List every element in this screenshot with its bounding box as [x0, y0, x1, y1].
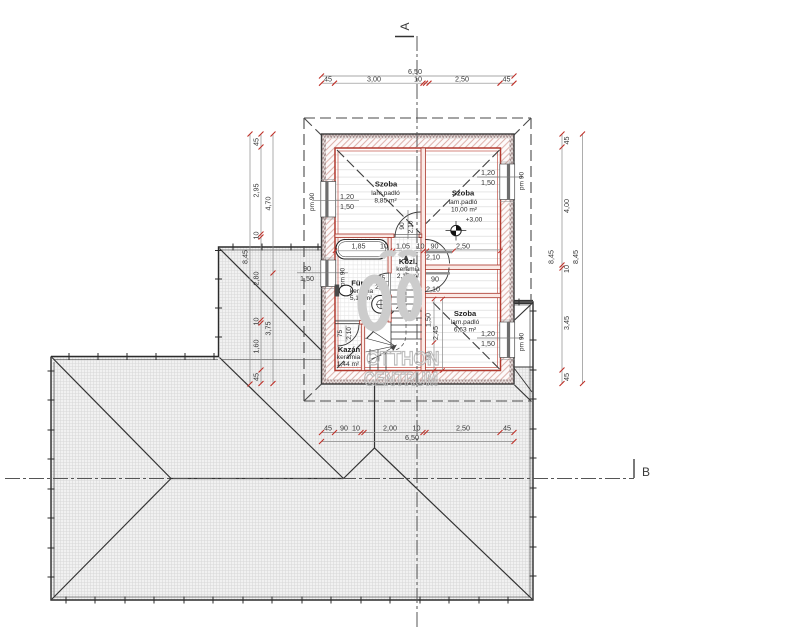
svg-text:1,50: 1,50 — [481, 178, 495, 187]
svg-text:10,00 m²: 10,00 m² — [451, 207, 478, 214]
svg-text:pm 90: pm 90 — [309, 193, 316, 212]
svg-text:4,00: 4,00 — [562, 199, 571, 213]
svg-text:Szoba: Szoba — [454, 309, 477, 318]
svg-text:90: 90 — [303, 264, 311, 273]
svg-text:3,75: 3,75 — [264, 322, 273, 336]
svg-text:2,00: 2,00 — [383, 424, 397, 433]
svg-text:10: 10 — [252, 318, 261, 326]
svg-text:10: 10 — [252, 232, 261, 240]
svg-text:45: 45 — [562, 137, 571, 145]
svg-text:45: 45 — [324, 424, 332, 433]
svg-text:2,50: 2,50 — [455, 75, 469, 84]
svg-text:4,70: 4,70 — [264, 197, 273, 211]
svg-text:6,50: 6,50 — [405, 433, 419, 442]
svg-text:45: 45 — [252, 373, 261, 381]
svg-text:pm 90: pm 90 — [340, 268, 347, 287]
svg-text:CENTRUM: CENTRUM — [364, 370, 438, 391]
svg-text:1,05: 1,05 — [396, 242, 410, 251]
svg-text:90: 90 — [431, 275, 439, 284]
svg-text:75: 75 — [337, 330, 344, 338]
svg-text:8,45: 8,45 — [571, 250, 580, 264]
svg-text:2,10: 2,10 — [426, 285, 440, 294]
svg-text:45: 45 — [324, 75, 332, 84]
svg-text:2,10: 2,10 — [426, 253, 440, 262]
svg-text:45: 45 — [562, 373, 571, 381]
svg-text:1,44 m²: 1,44 m² — [337, 361, 360, 368]
svg-text:pm 90: pm 90 — [519, 333, 526, 352]
svg-text:10: 10 — [380, 242, 388, 251]
svg-text:kerámia: kerámia — [337, 354, 361, 361]
svg-text:10: 10 — [562, 265, 571, 273]
svg-text:1,50: 1,50 — [340, 202, 354, 211]
svg-text:2,80: 2,80 — [252, 272, 261, 286]
svg-text:2,50: 2,50 — [456, 242, 470, 251]
svg-text:3,00: 3,00 — [367, 75, 381, 84]
svg-text:90: 90 — [399, 222, 406, 230]
svg-text:45: 45 — [252, 138, 261, 146]
svg-text:A: A — [398, 22, 412, 30]
svg-text:45: 45 — [503, 424, 511, 433]
svg-text:8,85 m²: 8,85 m² — [374, 198, 397, 205]
svg-text:1,20: 1,20 — [481, 168, 495, 177]
svg-text:10: 10 — [417, 242, 425, 251]
svg-text:10: 10 — [352, 424, 360, 433]
svg-text:Kazán: Kazán — [338, 345, 361, 354]
svg-text:lam.padló: lam.padló — [371, 190, 400, 197]
svg-text:OTTHON: OTTHON — [367, 349, 440, 370]
svg-text:2,10: 2,10 — [408, 220, 415, 233]
svg-text:lam.padló: lam.padló — [451, 319, 480, 326]
svg-text:2,50: 2,50 — [456, 424, 470, 433]
svg-text:Szoba: Szoba — [375, 179, 398, 188]
svg-text:2,95: 2,95 — [252, 184, 261, 198]
svg-text:1,50: 1,50 — [481, 339, 495, 348]
svg-text:1,85: 1,85 — [352, 242, 366, 251]
svg-text:90: 90 — [340, 424, 348, 433]
svg-text:1,50: 1,50 — [300, 274, 314, 283]
svg-text:10: 10 — [413, 424, 421, 433]
svg-text:+3,00: +3,00 — [466, 216, 483, 223]
svg-text:lam.padló: lam.padló — [449, 199, 478, 206]
svg-text:3,45: 3,45 — [562, 316, 571, 330]
svg-text:1,60: 1,60 — [252, 340, 261, 354]
svg-text:6,63 m²: 6,63 m² — [454, 327, 477, 334]
svg-text:1,20: 1,20 — [340, 192, 354, 201]
svg-text:Közl.: Közl. — [399, 257, 417, 266]
svg-text:B: B — [642, 465, 650, 479]
svg-text:1,20: 1,20 — [481, 329, 495, 338]
svg-text:90: 90 — [431, 242, 439, 251]
svg-text:kerámia: kerámia — [396, 266, 420, 273]
svg-text:10: 10 — [414, 75, 422, 84]
svg-text:pm 90: pm 90 — [519, 172, 526, 191]
svg-text:2,45: 2,45 — [431, 326, 440, 340]
svg-text:45: 45 — [503, 75, 511, 84]
svg-text:8,45: 8,45 — [241, 250, 250, 264]
svg-text:1,50: 1,50 — [424, 313, 433, 327]
svg-text:Szoba: Szoba — [452, 189, 475, 198]
svg-text:8,45: 8,45 — [547, 250, 556, 264]
svg-text:2,10: 2,10 — [346, 327, 353, 340]
